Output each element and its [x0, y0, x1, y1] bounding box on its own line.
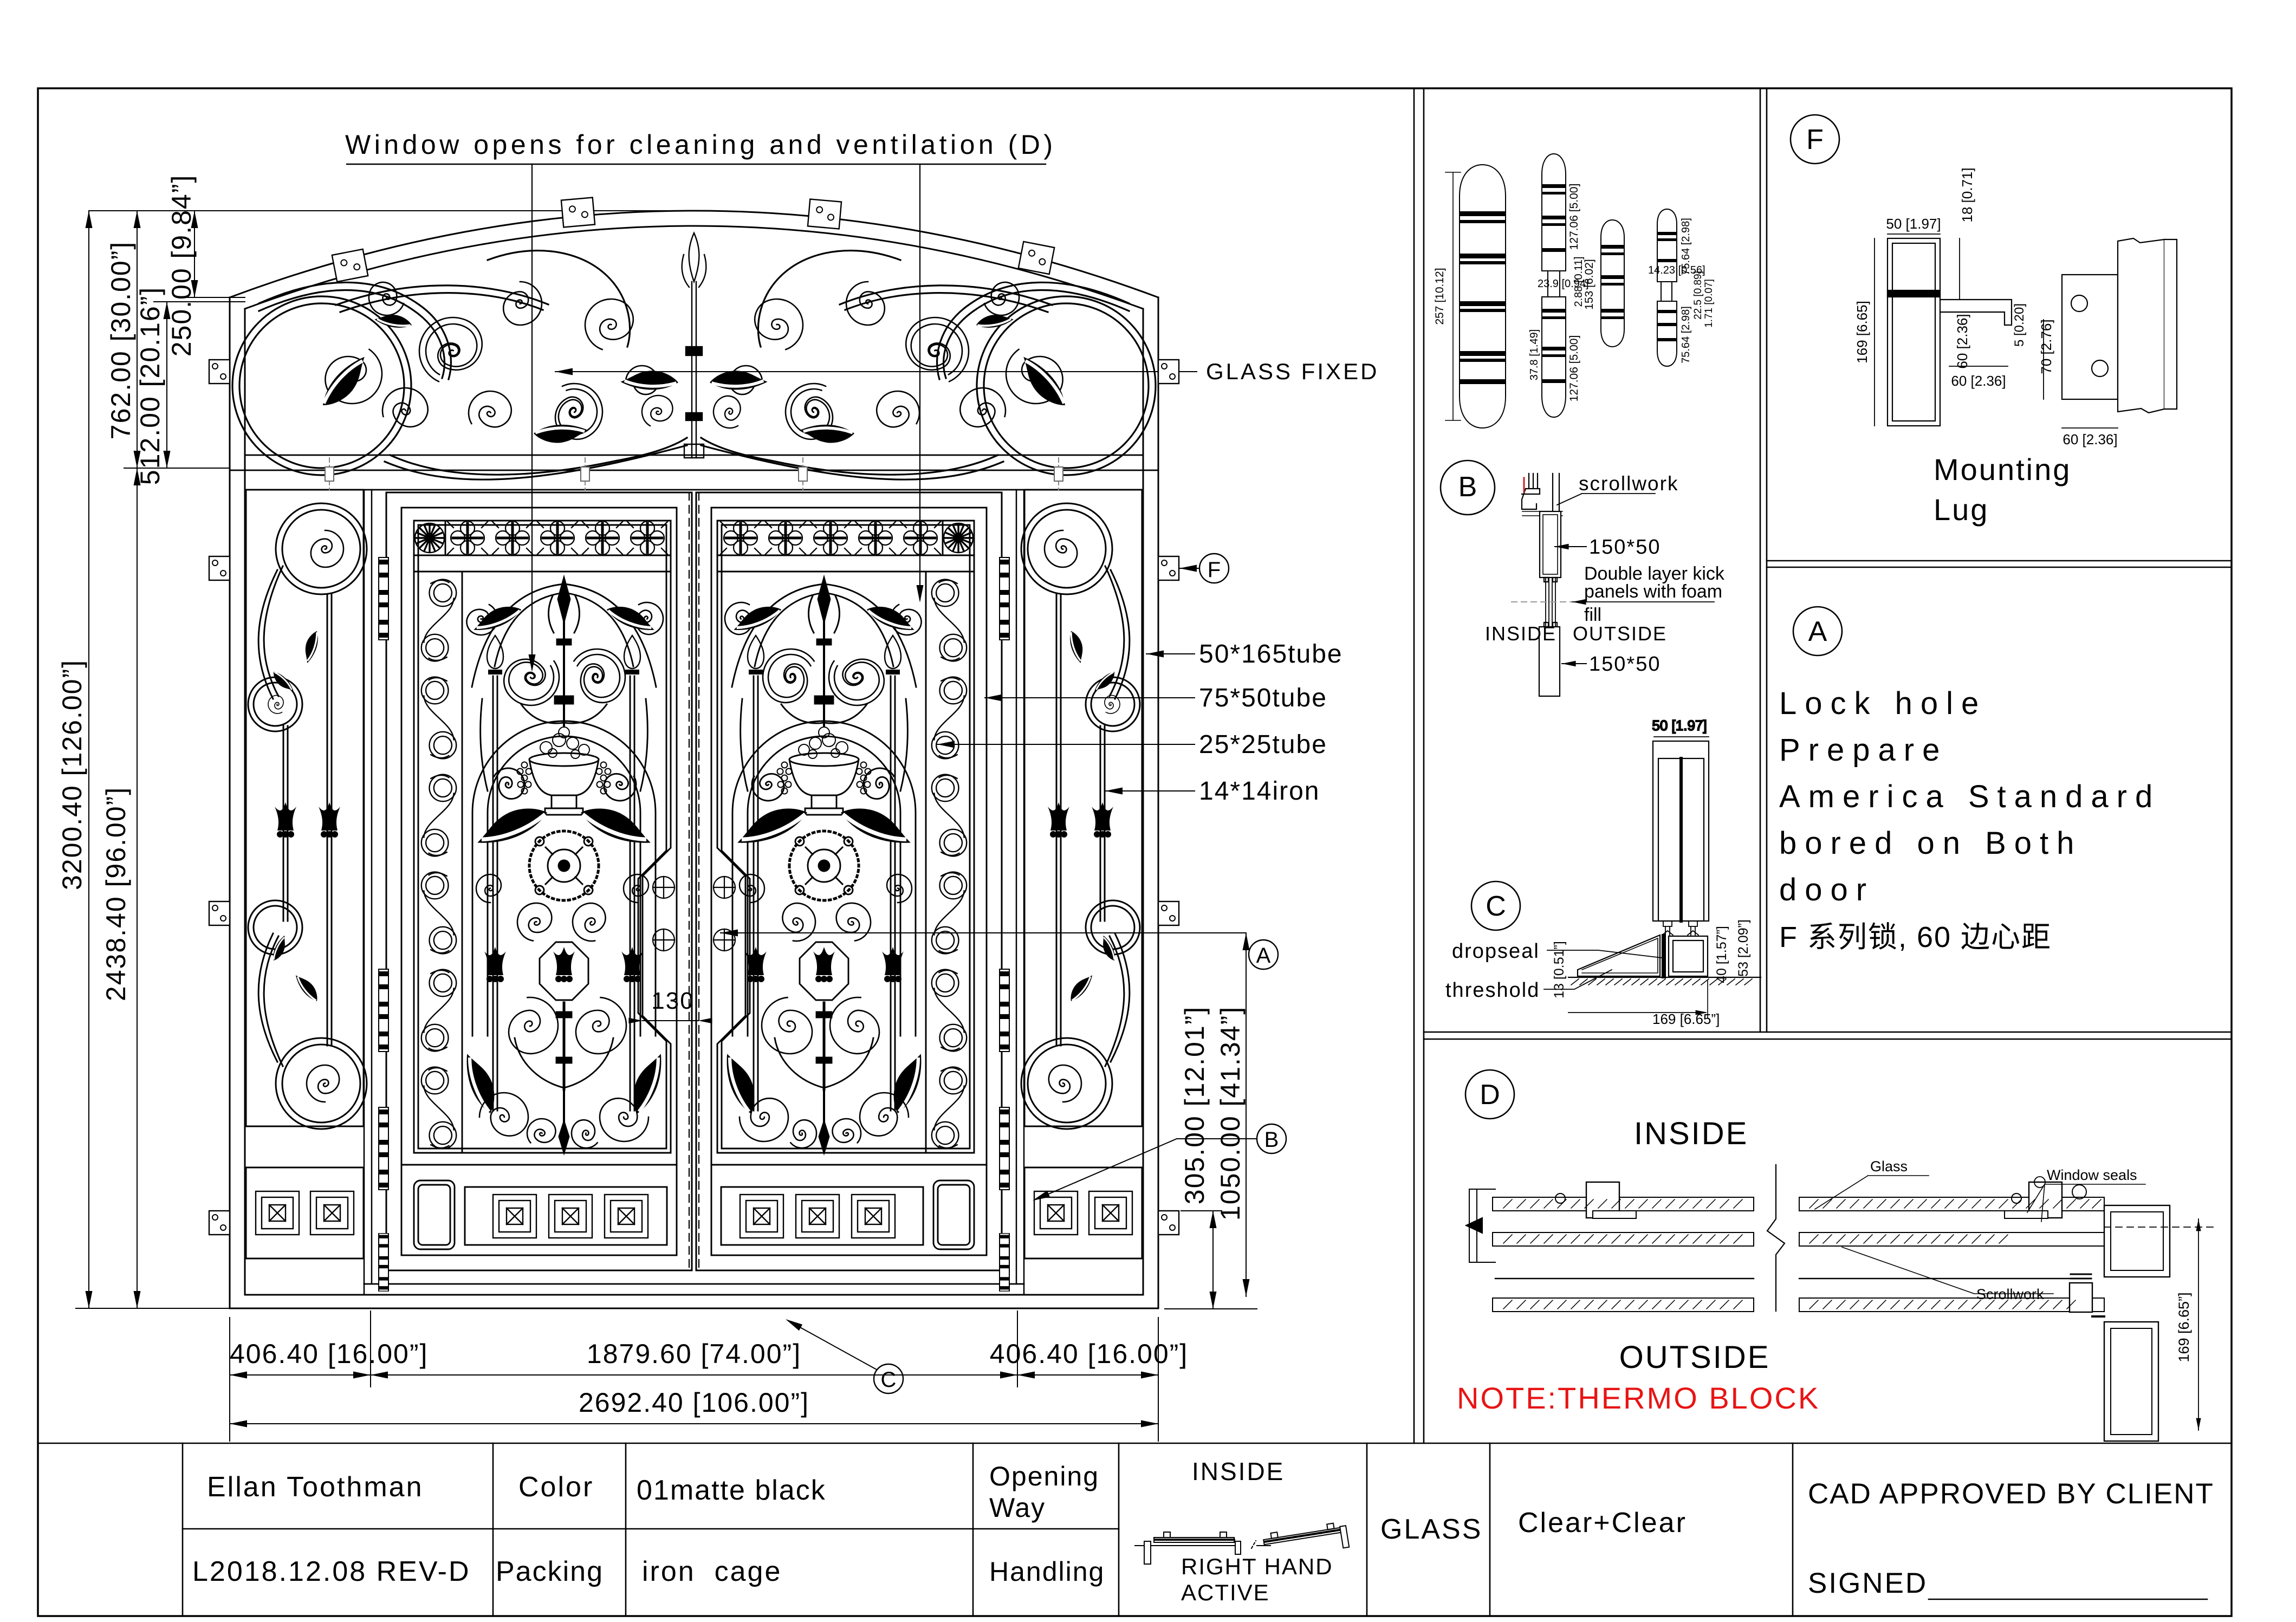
svg-text:169 [6.65]: 169 [6.65] [1854, 301, 1870, 364]
svg-text:Scrollwork: Scrollwork [1976, 1286, 2044, 1302]
svg-text:257 [10.12]: 257 [10.12] [1434, 268, 1446, 325]
svg-text:50 [1.97]: 50 [1.97] [1652, 717, 1707, 734]
svg-text:75.64 [2.98]: 75.64 [2.98] [1680, 306, 1692, 364]
svg-text:Color: Color [518, 1471, 594, 1503]
svg-text:OUTSIDE: OUTSIDE [1573, 622, 1667, 645]
svg-text:406.40 [16.00”]: 406.40 [16.00”] [230, 1339, 428, 1369]
svg-text:Lock hole: Lock hole [1779, 686, 1987, 721]
svg-text:A: A [1256, 944, 1271, 968]
svg-text:SIGNED: SIGNED [1808, 1567, 1928, 1599]
svg-text:INSIDE: INSIDE [1192, 1457, 1285, 1485]
svg-text:Way: Way [989, 1493, 1046, 1523]
svg-text:GLASS: GLASS [1380, 1514, 1482, 1545]
svg-text:1879.60 [74.00”]: 1879.60 [74.00”] [587, 1339, 801, 1369]
svg-text:1050.00 [41.34”]: 1050.00 [41.34”] [1215, 1006, 1246, 1221]
svg-text:3200.40 [126.00”]: 3200.40 [126.00”] [57, 659, 87, 890]
svg-text:01matte black: 01matte black [637, 1475, 826, 1506]
svg-text:NOTE:THERMO BLOCK: NOTE:THERMO BLOCK [1457, 1381, 1820, 1415]
svg-text:Handling: Handling [989, 1556, 1105, 1587]
svg-text:25*25tube: 25*25tube [1199, 730, 1327, 759]
svg-text:37.8 [1.49]: 37.8 [1.49] [1528, 329, 1540, 381]
svg-text:13 [0.51”]: 13 [0.51”] [1552, 941, 1567, 998]
svg-text:iron cage: iron cage [642, 1556, 782, 1587]
svg-text:panels with foam: panels with foam [1584, 581, 1722, 602]
svg-text:threshold: threshold [1445, 979, 1540, 1002]
svg-text:B: B [1458, 471, 1477, 503]
svg-text:Ellan Toothman: Ellan Toothman [207, 1471, 424, 1503]
svg-text:75*50tube: 75*50tube [1199, 684, 1327, 712]
svg-text:169 [6.65”]: 169 [6.65”] [2176, 1292, 2192, 1362]
svg-text:512.00 [20.16”]: 512.00 [20.16”] [135, 287, 165, 485]
svg-text:2692.40 [106.00”]: 2692.40 [106.00”] [579, 1387, 809, 1418]
svg-text:Opening: Opening [989, 1461, 1099, 1491]
svg-text:169 [6.65”]: 169 [6.65”] [1652, 1011, 1720, 1027]
svg-text:127.06 [5.00]: 127.06 [5.00] [1568, 184, 1580, 250]
svg-text:dropseal: dropseal [1452, 940, 1540, 963]
svg-text:door: door [1779, 872, 1875, 907]
svg-text:Window seals: Window seals [2047, 1167, 2137, 1183]
svg-text:150*50: 150*50 [1589, 653, 1661, 676]
svg-text:18 [0.71]: 18 [0.71] [1959, 167, 1975, 222]
svg-text:70 [2.76]: 70 [2.76] [2038, 319, 2054, 374]
svg-text:5 [0.20]: 5 [0.20] [2012, 303, 2027, 347]
svg-text:OUTSIDE: OUTSIDE [1619, 1340, 1770, 1375]
svg-text:130: 130 [651, 988, 694, 1014]
svg-text:Clear+Clear: Clear+Clear [1518, 1507, 1687, 1539]
svg-text:GLASS FIXED: GLASS FIXED [1206, 359, 1379, 384]
svg-text:America Standard: America Standard [1779, 779, 2161, 814]
svg-text:INSIDE: INSIDE [1634, 1116, 1748, 1151]
svg-text:C: C [1486, 891, 1506, 922]
svg-text:250.00 [9.84”]: 250.00 [9.84”] [166, 174, 197, 357]
svg-text:Mounting: Mounting [1934, 452, 2071, 486]
svg-text:762.00 [30.00”]: 762.00 [30.00”] [106, 241, 136, 439]
svg-text:53 [2.09”]: 53 [2.09”] [1736, 919, 1751, 977]
svg-text:Glass: Glass [1870, 1158, 1908, 1175]
svg-text:scrollwork: scrollwork [1579, 472, 1678, 495]
svg-text:60 [2.36]: 60 [2.36] [1954, 314, 1970, 368]
svg-text:Packing: Packing [496, 1556, 604, 1587]
svg-text:D: D [1480, 1079, 1500, 1111]
svg-text:2438.40 [96.00”]: 2438.40 [96.00”] [101, 787, 131, 1001]
svg-text:60 [2.36]: 60 [2.36] [2062, 431, 2117, 447]
svg-text:22.5 [0.89]: 22.5 [0.89] [1692, 271, 1704, 320]
svg-text:Lug: Lug [1934, 492, 1989, 527]
svg-text:INSIDE: INSIDE [1485, 622, 1556, 645]
svg-text:1.71 [0.07]: 1.71 [0.07] [1703, 279, 1715, 328]
svg-text:14*14iron: 14*14iron [1199, 777, 1320, 806]
svg-text:406.40 [16.00”]: 406.40 [16.00”] [990, 1339, 1188, 1369]
svg-text:60 [2.36]: 60 [2.36] [1951, 373, 2006, 389]
svg-text:305.00 [12.01”]: 305.00 [12.01”] [1179, 1006, 1210, 1204]
svg-text:Window opens for cleaning and: Window opens for cleaning and ventilatio… [345, 129, 1056, 160]
svg-text:F: F [1208, 558, 1221, 582]
svg-text:F: F [1806, 124, 1824, 155]
svg-text:CAD APPROVED BY CLIENT: CAD APPROVED BY CLIENT [1808, 1478, 2214, 1510]
svg-text:F 系列锁, 60 边心距: F 系列锁, 60 边心距 [1779, 921, 2052, 953]
svg-text:153 [6.02]: 153 [6.02] [1583, 259, 1595, 309]
svg-text:127.06 [5.00]: 127.06 [5.00] [1568, 335, 1580, 402]
svg-text:50 [1.97]: 50 [1.97] [1886, 216, 1941, 232]
svg-text:L2018.12.08 REV-D: L2018.12.08 REV-D [192, 1556, 471, 1587]
svg-text:40 [1.57”]: 40 [1.57”] [1714, 926, 1729, 983]
svg-text:150*50: 150*50 [1589, 536, 1661, 559]
svg-text:50*165tube: 50*165tube [1199, 640, 1343, 669]
svg-text:75.64 [2.98]: 75.64 [2.98] [1680, 218, 1692, 275]
svg-text:A: A [1808, 616, 1827, 647]
svg-text:B: B [1264, 1128, 1279, 1152]
svg-text:RIGHT HAND: RIGHT HAND [1181, 1554, 1333, 1579]
svg-text:ACTIVE: ACTIVE [1181, 1580, 1270, 1605]
svg-text:bored on Both: bored on Both [1779, 826, 2082, 861]
svg-text:C: C [881, 1368, 897, 1392]
svg-text:Prepare: Prepare [1779, 732, 1948, 768]
